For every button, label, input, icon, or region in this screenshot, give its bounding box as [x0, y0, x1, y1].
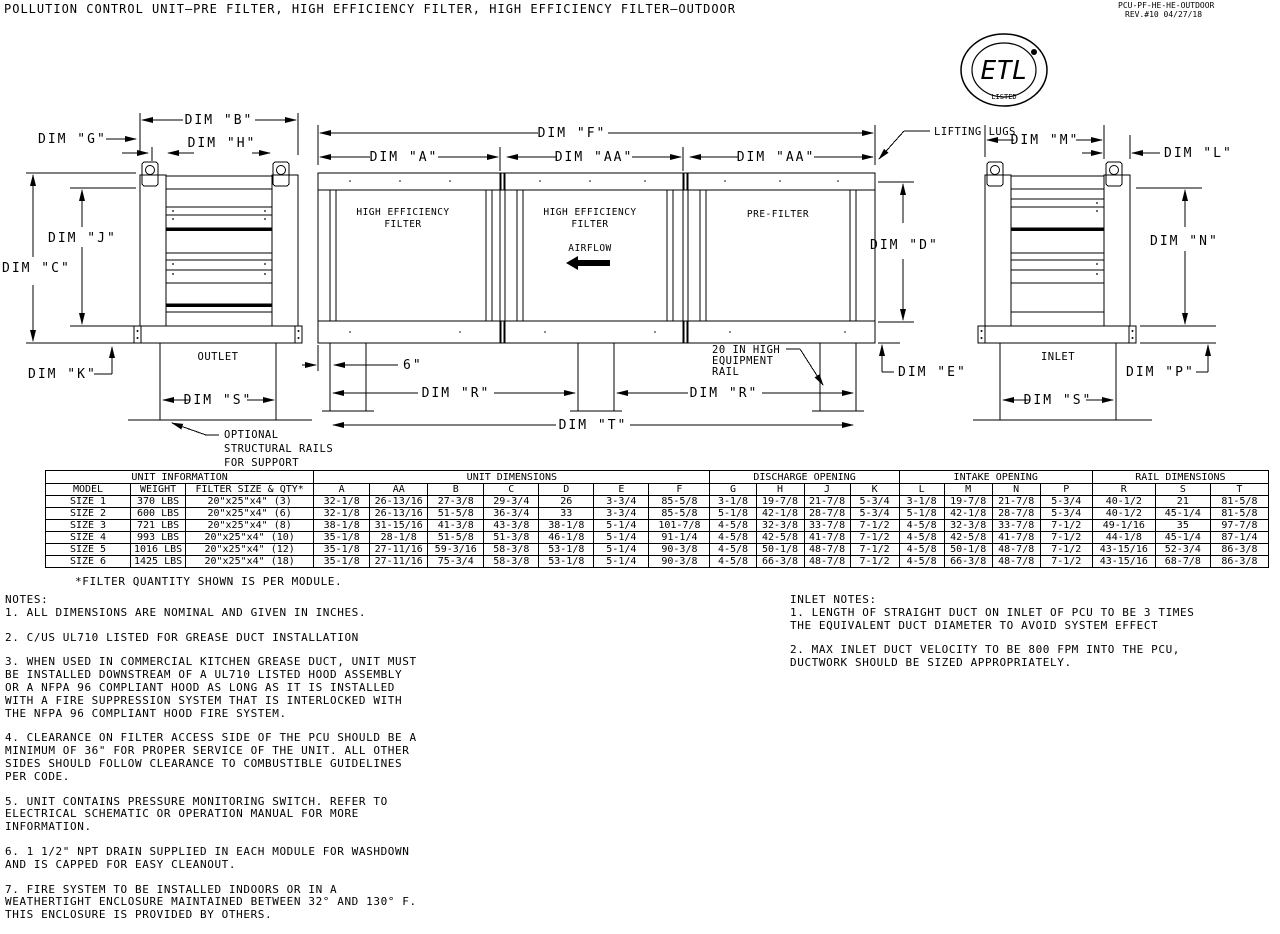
table-cell: 33	[539, 508, 594, 520]
table-column-header: FILTER SIZE & QTY*	[186, 484, 314, 496]
table-cell: 87-1/4	[1210, 532, 1268, 544]
table-cell: 7-1/2	[850, 544, 899, 556]
table-row: SIZE 4993 LBS20"x25"x4" (10)35-1/828-1/8…	[46, 532, 1269, 544]
table-cell: 7-1/2	[850, 556, 899, 568]
table-cell: 90-3/8	[649, 556, 710, 568]
table-group-header: INTAKE OPENING	[899, 471, 1092, 484]
table-cell: 38-1/8	[539, 520, 594, 532]
table-cell: 7-1/2	[850, 520, 899, 532]
inlet-label: INLET	[1041, 351, 1075, 363]
dim-a-label: DIM "A"	[370, 150, 439, 165]
table-footnote: *FILTER QUANTITY SHOWN IS PER MODULE.	[75, 575, 342, 588]
table-cell: 19-7/8	[944, 496, 992, 508]
table-cell: 5-1/4	[594, 556, 649, 568]
drawing-title: POLLUTION CONTROL UNIT–PRE FILTER, HIGH …	[4, 2, 736, 16]
table-cell: 370 LBS	[131, 496, 186, 508]
table-cell: 20"x25"x4" (6)	[186, 508, 314, 520]
table-column-header: H	[756, 484, 804, 496]
module-label-prefilter: PRE-FILTER	[747, 209, 809, 220]
optional-rails-note: OPTIONAL	[224, 429, 279, 441]
table-cell: 48-7/8	[804, 556, 850, 568]
table-cell: 3-3/4	[594, 496, 649, 508]
table-cell: 1425 LBS	[131, 556, 186, 568]
table-column-header: T	[1210, 484, 1268, 496]
table-cell: 21-7/8	[992, 496, 1040, 508]
table-cell: 43-3/8	[484, 520, 539, 532]
table-cell: 42-5/8	[756, 532, 804, 544]
table-cell: 44-1/8	[1092, 532, 1155, 544]
table-cell: SIZE 3	[46, 520, 131, 532]
table-cell: 43-15/16	[1092, 544, 1155, 556]
table-cell: 53-1/8	[539, 544, 594, 556]
dim-j-label: DIM "J"	[48, 231, 117, 246]
etl-logo-text: ETL	[981, 56, 1028, 86]
table-cell: 3-1/8	[710, 496, 756, 508]
table-cell: 32-1/8	[314, 496, 370, 508]
outlet-end-view	[128, 162, 312, 420]
lifting-lugs-label: LIFTING LUGS	[934, 126, 1016, 138]
table-cell: 43-15/16	[1092, 556, 1155, 568]
outlet-label: OUTLET	[198, 351, 239, 363]
spec-table: UNIT INFORMATIONUNIT DIMENSIONSDISCHARGE…	[45, 470, 1269, 568]
table-cell: 32-1/8	[314, 508, 370, 520]
table-column-header: B	[428, 484, 484, 496]
table-column-header: D	[539, 484, 594, 496]
table-cell: 58-3/8	[484, 556, 539, 568]
table-group-header: UNIT DIMENSIONS	[314, 471, 710, 484]
table-cell: 5-1/4	[594, 532, 649, 544]
table-cell: 68-7/8	[1155, 556, 1210, 568]
svg-text:RAIL: RAIL	[712, 366, 739, 378]
table-cell: 85-5/8	[649, 496, 710, 508]
table-cell: 40-1/2	[1092, 508, 1155, 520]
table-cell: 4-5/8	[710, 556, 756, 568]
table-cell: 35	[1155, 520, 1210, 532]
table-cell: 5-3/4	[850, 496, 899, 508]
table-column-header: P	[1040, 484, 1092, 496]
table-cell: 20"x25"x4" (8)	[186, 520, 314, 532]
dim-aa-label: DIM "AA"	[555, 150, 634, 165]
table-cell: 5-3/4	[850, 508, 899, 520]
table-cell: 7-1/2	[1040, 520, 1092, 532]
dim-c-label: DIM "C"	[2, 261, 71, 276]
table-cell: SIZE 5	[46, 544, 131, 556]
table-cell: 19-7/8	[756, 496, 804, 508]
table-cell: 5-1/8	[899, 508, 944, 520]
table-column-header: E	[594, 484, 649, 496]
table-cell: 1016 LBS	[131, 544, 186, 556]
table-cell: SIZE 4	[46, 532, 131, 544]
table-cell: 4-5/8	[710, 544, 756, 556]
table-column-header: C	[484, 484, 539, 496]
notes-title: NOTES:	[5, 594, 485, 607]
table-cell: 33-7/8	[992, 520, 1040, 532]
table-cell: 41-7/8	[992, 532, 1040, 544]
note-item: 3. WHEN USED IN COMMERCIAL KITCHEN GREAS…	[5, 656, 485, 720]
table-column-header: J	[804, 484, 850, 496]
table-cell: 26	[539, 496, 594, 508]
table-cell: 4-5/8	[899, 556, 944, 568]
table-cell: 51-5/8	[428, 532, 484, 544]
dim-s-label-2: DIM "S"	[1024, 393, 1093, 408]
table-cell: 45-1/4	[1155, 532, 1210, 544]
table-cell: 91-1/4	[649, 532, 710, 544]
dim-r-label-2: DIM "R"	[690, 386, 759, 401]
note-item: 6. 1 1/2" NPT DRAIN SUPPLIED IN EACH MOD…	[5, 846, 485, 872]
table-cell: 81-5/8	[1210, 496, 1268, 508]
table-cell: 3-3/4	[594, 508, 649, 520]
table-cell: 20"x25"x4" (18)	[186, 556, 314, 568]
table-cell: 20"x25"x4" (10)	[186, 532, 314, 544]
dim-e-label: DIM "E"	[898, 365, 967, 380]
table-cell: 28-7/8	[804, 508, 850, 520]
table-column-header: N	[992, 484, 1040, 496]
table-cell: 7-1/2	[1040, 532, 1092, 544]
table-cell: 33-7/8	[804, 520, 850, 532]
table-cell: 101-7/8	[649, 520, 710, 532]
table-cell: 32-3/8	[756, 520, 804, 532]
table-cell: 4-5/8	[710, 532, 756, 544]
spec-table-head: UNIT INFORMATIONUNIT DIMENSIONSDISCHARGE…	[46, 471, 1269, 496]
table-cell: 27-3/8	[428, 496, 484, 508]
table-cell: 5-1/4	[594, 520, 649, 532]
revision: REV.#10 04/27/18	[1118, 10, 1214, 19]
table-row: SIZE 1370 LBS20"x25"x4" (3)32-1/826-13/1…	[46, 496, 1269, 508]
table-cell: 50-1/8	[944, 544, 992, 556]
table-column-header: K	[850, 484, 899, 496]
bottom-rail	[318, 321, 875, 343]
table-cell: 81-5/8	[1210, 508, 1268, 520]
table-cell: 66-3/8	[944, 556, 992, 568]
general-notes: NOTES:1. ALL DIMENSIONS ARE NOMINAL AND …	[5, 594, 485, 934]
table-cell: 7-1/2	[1040, 556, 1092, 568]
table-cell: 52-3/4	[1155, 544, 1210, 556]
dim-m-label: DIM "M"	[1011, 133, 1080, 148]
module-label-he2: HIGH EFFICIENCY	[543, 207, 636, 218]
side-view-dimensions: DIM "F" DIM "A" DIM "AA" DIM "AA" LIFTIN…	[302, 125, 1016, 433]
table-cell: 49-1/16	[1092, 520, 1155, 532]
table-column-header: L	[899, 484, 944, 496]
table-cell: 48-7/8	[992, 544, 1040, 556]
drawing-sheet: { "meta": { "title": "POLLUTION CONTROL …	[0, 0, 1280, 920]
table-cell: 51-3/8	[484, 532, 539, 544]
table-cell: 31-15/16	[370, 520, 428, 532]
note-item: 2. MAX INLET DUCT VELOCITY TO BE 800 FPM…	[790, 644, 1270, 670]
table-cell: 45-1/4	[1155, 508, 1210, 520]
table-cell: 42-5/8	[944, 532, 992, 544]
table-cell: 28-7/8	[992, 508, 1040, 520]
airflow-arrow-icon	[566, 256, 610, 270]
table-column-header: M	[944, 484, 992, 496]
table-cell: 90-3/8	[649, 544, 710, 556]
table-cell: 28-1/8	[370, 532, 428, 544]
table-cell: SIZE 6	[46, 556, 131, 568]
dim-aa-label-2: DIM "AA"	[737, 150, 816, 165]
table-group-header: RAIL DIMENSIONS	[1092, 471, 1268, 484]
dim-p-label: DIM "P"	[1126, 365, 1195, 380]
table-cell: 3-1/8	[899, 496, 944, 508]
table-cell: 5-3/4	[1040, 496, 1092, 508]
rail-rivet-dots	[349, 180, 846, 333]
table-cell: 97-7/8	[1210, 520, 1268, 532]
table-cell: 600 LBS	[131, 508, 186, 520]
base-rail	[978, 326, 1136, 343]
table-cell: 27-11/16	[370, 556, 428, 568]
table-group-header: DISCHARGE OPENING	[710, 471, 899, 484]
table-cell: 26-13/16	[370, 496, 428, 508]
table-cell: 36-3/4	[484, 508, 539, 520]
table-cell: 41-3/8	[428, 520, 484, 532]
table-cell: 86-3/8	[1210, 556, 1268, 568]
table-row: SIZE 2600 LBS20"x25"x4" (6)32-1/826-13/1…	[46, 508, 1269, 520]
table-column-header: WEIGHT	[131, 484, 186, 496]
table-column-header: MODEL	[46, 484, 131, 496]
table-cell: 35-1/8	[314, 544, 370, 556]
table-column-header: R	[1092, 484, 1155, 496]
dim-r-label: DIM "R"	[422, 386, 491, 401]
spec-table-body: SIZE 1370 LBS20"x25"x4" (3)32-1/826-13/1…	[46, 496, 1269, 568]
table-cell: 5-3/4	[1040, 508, 1092, 520]
dim-t-label: DIM "T"	[559, 418, 628, 433]
svg-text:STRUCTURAL RAILS: STRUCTURAL RAILS	[224, 443, 333, 455]
table-cell: 46-1/8	[539, 532, 594, 544]
table-cell: 48-7/8	[992, 556, 1040, 568]
doc-number: PCU-PF-HE-HE-OUTDOOR	[1118, 1, 1214, 10]
title-block: PCU-PF-HE-HE-OUTDOOR REV.#10 04/27/18	[1118, 1, 1214, 19]
table-cell: 59-3/16	[428, 544, 484, 556]
table-cell: 75-3/4	[428, 556, 484, 568]
dim-l-label: DIM "L"	[1164, 146, 1233, 161]
dim-b-label: DIM "B"	[185, 113, 254, 128]
table-cell: 4-5/8	[710, 520, 756, 532]
table-cell: 721 LBS	[131, 520, 186, 532]
table-cell: 86-3/8	[1210, 544, 1268, 556]
drawing-views: DIM "B" DIM "G" DIM "H" DIM "J" DIM "C" …	[0, 95, 1280, 470]
table-cell: 50-1/8	[756, 544, 804, 556]
note-item: 5. UNIT CONTAINS PRESSURE MONITORING SWI…	[5, 796, 485, 834]
table-column-header: G	[710, 484, 756, 496]
note-item: 2. C/US UL710 LISTED FOR GREASE DUCT INS…	[5, 632, 485, 645]
table-cell: 27-11/16	[370, 544, 428, 556]
table-group-header: UNIT INFORMATION	[46, 471, 314, 484]
table-cell: 5-1/4	[594, 544, 649, 556]
table-column-header: S	[1155, 484, 1210, 496]
registered-mark-icon	[1031, 49, 1037, 55]
table-cell: 35-1/8	[314, 532, 370, 544]
svg-text:FOR SUPPORT: FOR SUPPORT	[224, 457, 299, 469]
table-cell: 42-1/8	[944, 508, 992, 520]
table-cell: 993 LBS	[131, 532, 186, 544]
notes-title: INLET NOTES:	[790, 594, 1270, 607]
table-cell: 53-1/8	[539, 556, 594, 568]
table-cell: 20"x25"x4" (3)	[186, 496, 314, 508]
table-column-header: A	[314, 484, 370, 496]
table-cell: 5-1/8	[710, 508, 756, 520]
table-row: SIZE 61425 LBS20"x25"x4" (18)35-1/827-11…	[46, 556, 1269, 568]
table-cell: 85-5/8	[649, 508, 710, 520]
table-cell: 40-1/2	[1092, 496, 1155, 508]
equipment-rail-leg	[578, 343, 614, 411]
dim-d-label: DIM "D"	[870, 238, 939, 253]
table-cell: 38-1/8	[314, 520, 370, 532]
table-column-header: AA	[370, 484, 428, 496]
table-cell: 7-1/2	[850, 532, 899, 544]
dim-f-label: DIM "F"	[538, 126, 607, 141]
note-item: 7. FIRE SYSTEM TO BE INSTALLED INDOORS O…	[5, 884, 485, 922]
note-item: 4. CLEARANCE ON FILTER ACCESS SIDE OF TH…	[5, 732, 485, 783]
table-cell: 4-5/8	[899, 544, 944, 556]
table-cell: 7-1/2	[1040, 544, 1092, 556]
note-item: 1. ALL DIMENSIONS ARE NOMINAL AND GIVEN …	[5, 607, 485, 620]
table-cell: 32-3/8	[944, 520, 992, 532]
table-cell: 21-7/8	[804, 496, 850, 508]
svg-text:FILTER: FILTER	[384, 219, 421, 230]
table-cell: 21	[1155, 496, 1210, 508]
dim-g-label: DIM "G"	[38, 132, 107, 147]
inlet-notes: INLET NOTES:1. LENGTH OF STRAIGHT DUCT O…	[790, 594, 1270, 682]
table-cell: 41-7/8	[804, 532, 850, 544]
equipment-rail-leg	[820, 343, 856, 411]
table-cell: 4-5/8	[899, 532, 944, 544]
dim-h-label: DIM "H"	[188, 136, 257, 151]
table-cell: 20"x25"x4" (12)	[186, 544, 314, 556]
module-label-he1: HIGH EFFICIENCY	[356, 207, 449, 218]
table-cell: SIZE 1	[46, 496, 131, 508]
table-cell: 29-3/4	[484, 496, 539, 508]
table-row: SIZE 3721 LBS20"x25"x4" (8)38-1/831-15/1…	[46, 520, 1269, 532]
table-cell: 48-7/8	[804, 544, 850, 556]
airflow-label: AIRFLOW	[568, 243, 612, 254]
base-rail	[134, 326, 302, 343]
inlet-end-view: INLET DIM "S"	[973, 162, 1152, 420]
top-rail	[318, 173, 875, 190]
dim-k-label: DIM "K"	[28, 367, 97, 382]
table-cell: 66-3/8	[756, 556, 804, 568]
table-cell: 35-1/8	[314, 556, 370, 568]
svg-text:FILTER: FILTER	[571, 219, 608, 230]
table-cell: 42-1/8	[756, 508, 804, 520]
table-cell: 58-3/8	[484, 544, 539, 556]
dim-n-label: DIM "N"	[1150, 234, 1219, 249]
table-cell: 4-5/8	[899, 520, 944, 532]
table-cell: SIZE 2	[46, 508, 131, 520]
equipment-rail-leg	[330, 343, 366, 411]
dim-s-label: DIM "S"	[184, 393, 253, 408]
table-cell: 51-5/8	[428, 508, 484, 520]
table-cell: 26-13/16	[370, 508, 428, 520]
side-view: HIGH EFFICIENCY FILTER HIGH EFFICIENCY F…	[318, 173, 875, 411]
six-inch-label: 6"	[403, 358, 423, 373]
note-item: 1. LENGTH OF STRAIGHT DUCT ON INLET OF P…	[790, 607, 1270, 633]
table-column-header: F	[649, 484, 710, 496]
table-row: SIZE 51016 LBS20"x25"x4" (12)35-1/827-11…	[46, 544, 1269, 556]
